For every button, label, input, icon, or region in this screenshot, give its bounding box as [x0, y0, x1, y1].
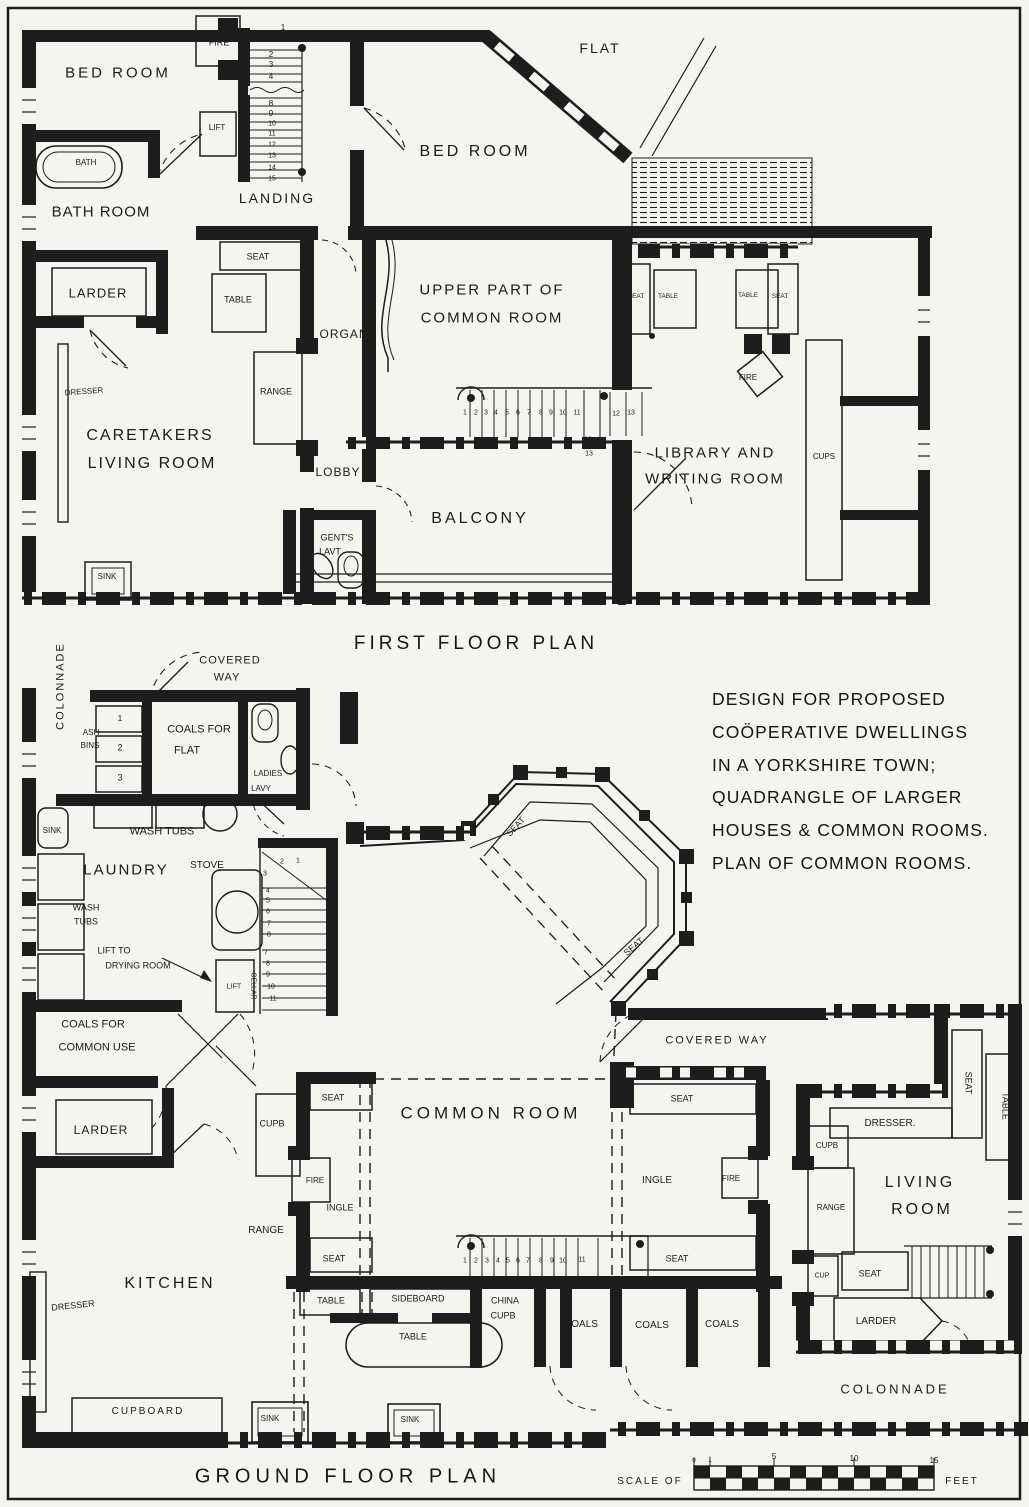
design-statement-line: PLAN OF COMMON ROOMS. — [712, 847, 989, 880]
design-statement: DESIGN FOR PROPOSEDCOÖPERATIVE DWELLINGS… — [712, 683, 989, 880]
first-floor-plan-title: FIRST FLOOR PLAN — [354, 633, 598, 655]
scale-bar — [694, 1458, 934, 1490]
first-floor-drawing — [20, 16, 932, 605]
design-statement-line: IN A YORKSHIRE TOWN; — [712, 749, 989, 782]
design-statement-line: DESIGN FOR PROPOSED — [712, 683, 989, 716]
design-statement-line: QUADRANGLE OF LARGER — [712, 781, 989, 814]
floor-plan-sheet: BED ROOMFIRELIFTBATHBATH ROOMLANDING1234… — [0, 0, 1029, 1507]
design-statement-line: HOUSES & COMMON ROOMS. — [712, 814, 989, 847]
ground-floor-plan-title: GROUND FLOOR PLAN — [195, 1466, 501, 1489]
design-statement-line: COÖPERATIVE DWELLINGS — [712, 716, 989, 749]
